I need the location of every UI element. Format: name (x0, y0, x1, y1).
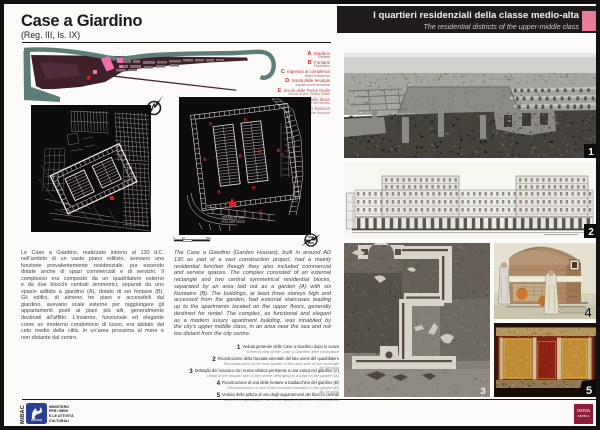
svg-text:0: 0 (173, 236, 175, 240)
svg-text:B: B (243, 208, 246, 213)
svg-text:5: 5 (586, 385, 592, 397)
svg-text:3: 3 (480, 386, 485, 397)
svg-text:YOU ARE HERE: YOU ARE HERE (221, 220, 245, 224)
svg-text:10: 10 (182, 236, 185, 240)
svg-text:4: 4 (584, 305, 592, 319)
svg-text:1: 1 (588, 147, 594, 158)
svg-text:2: 2 (588, 227, 594, 238)
svg-text:G: G (259, 209, 262, 214)
svg-text:50m: 50m (206, 236, 211, 240)
svg-text:D: D (225, 206, 228, 211)
svg-text:VOI SIETE QUI: VOI SIETE QUI (222, 216, 244, 220)
